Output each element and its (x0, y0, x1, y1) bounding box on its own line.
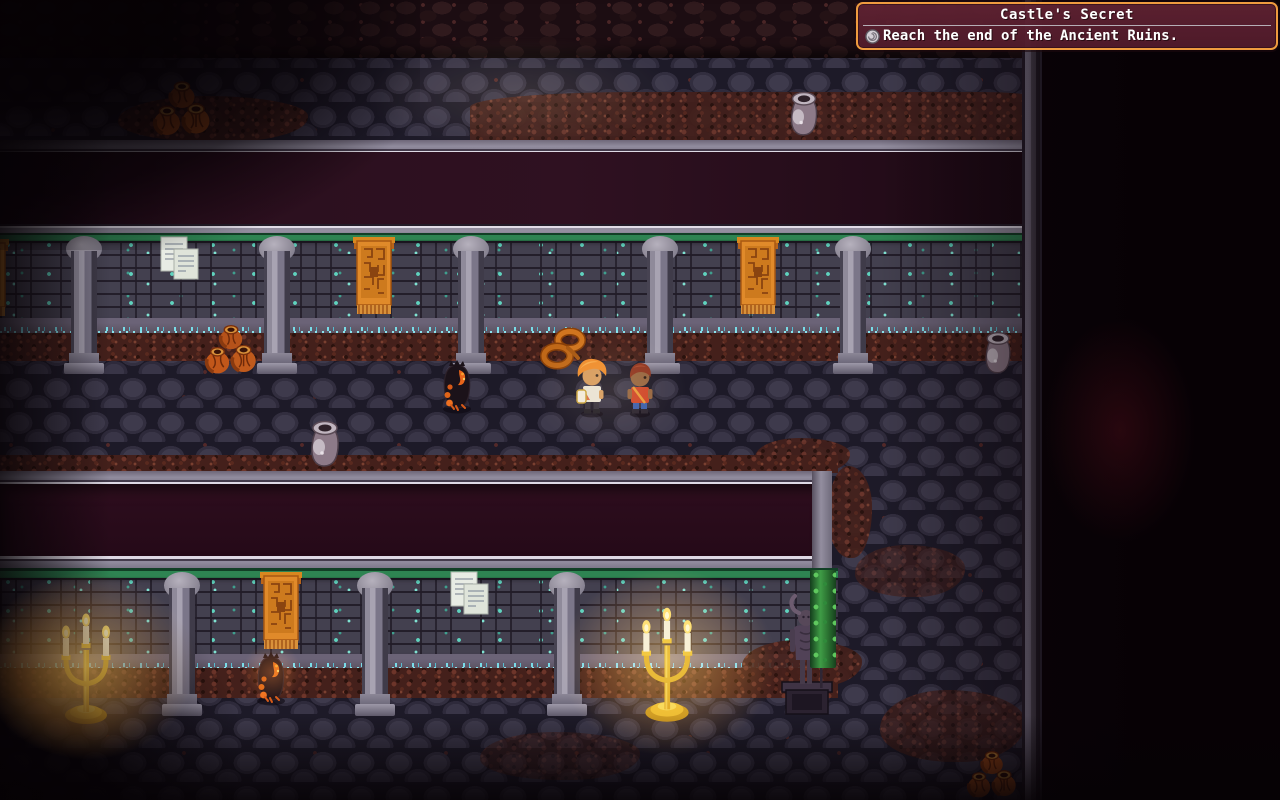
wall-banner-graphic (737, 237, 779, 317)
quest-objective: Reach the end of the Ancient Ruins. (883, 28, 1178, 44)
gravel-patch (828, 466, 872, 558)
gravel-patch (470, 92, 1035, 142)
hall-ledge-top (0, 471, 832, 485)
wall-banner-graphic (260, 572, 302, 652)
wall-notes-lower[interactable] (450, 571, 492, 619)
banner-lower-1 (260, 572, 302, 652)
gravel-patch (855, 545, 965, 597)
pillar-base (162, 704, 202, 716)
hero-graphic (572, 355, 612, 418)
gravel-strip-upper (0, 333, 1034, 361)
wall-banner-graphic (0, 239, 9, 319)
pillar-base (355, 704, 395, 716)
wall-notes-upper[interactable] (160, 236, 202, 284)
pillar-shaft (169, 588, 195, 705)
ivy-corner (810, 570, 836, 668)
shadow-imp-lower[interactable] (250, 648, 292, 706)
rune-base-upper (0, 318, 1034, 334)
pillar-upper-1 (62, 236, 106, 374)
pillar-lower-3 (545, 572, 589, 716)
pillar-base (547, 704, 587, 716)
game-viewport[interactable]: Castle's Secret Reach the end of the Anc… (0, 0, 1280, 800)
ceramic-pot-graphic (305, 416, 345, 470)
dark-hall (0, 484, 824, 558)
companion-character[interactable] (621, 359, 659, 418)
void-right (1042, 0, 1280, 800)
gravel-strip-lower (0, 668, 838, 698)
ceramic-pot-right[interactable] (980, 326, 1016, 378)
pillar-lower-2 (353, 572, 397, 716)
spiral-badge-icon (865, 29, 880, 44)
banner-upper-1 (353, 237, 395, 317)
shadowed-wall-band (0, 152, 1034, 226)
pillar-base (257, 363, 297, 374)
quest-separator (863, 25, 1271, 26)
clay-pots-graphic (150, 80, 214, 138)
clay-pots-mid-corridor[interactable] (204, 322, 258, 378)
shadow-imp-graphic (250, 648, 292, 706)
candelabra-right (634, 606, 700, 724)
shadow-imp-upper[interactable] (436, 356, 478, 414)
candelabra-graphic (634, 606, 700, 724)
map-right-edge (1022, 0, 1042, 800)
pillar-lower-1 (160, 572, 204, 716)
banner-upper-2 (737, 237, 779, 317)
hero-character[interactable] (572, 355, 612, 418)
gravel-patch (480, 732, 640, 780)
pillar-shaft (840, 251, 866, 363)
clay-pots-graphic (966, 750, 1018, 800)
paper-notes-graphic (450, 571, 492, 619)
ceramic-pot-mid[interactable] (305, 416, 345, 470)
pillar-upper-4 (638, 236, 682, 374)
candelabra-graphic (54, 612, 118, 726)
candelabra-left (54, 612, 118, 726)
pillar-shaft (264, 251, 290, 363)
pillar-base (64, 363, 104, 374)
ceramic-pot-graphic (785, 88, 823, 138)
paper-notes-graphic (160, 236, 202, 284)
pillar-shaft (71, 251, 97, 363)
banner-left-edge (0, 239, 9, 319)
shadow-imp-graphic (436, 356, 478, 414)
pillar-shaft (458, 251, 484, 363)
clay-pots-top-left[interactable] (150, 80, 214, 138)
companion-graphic (621, 359, 659, 418)
clay-pots-graphic (204, 322, 258, 378)
pillar-base (833, 363, 873, 374)
quest-title: Castle's Secret (858, 4, 1276, 23)
wall-banner-graphic (353, 237, 395, 317)
pillar-upper-3 (449, 236, 493, 374)
hall-end-cap (812, 471, 832, 569)
pillar-shaft (554, 588, 580, 705)
clay-pots-bottom-right[interactable] (966, 750, 1018, 800)
pillar-shaft (647, 251, 673, 363)
ceramic-pot-top[interactable] (785, 88, 823, 138)
ceramic-pot-graphic (980, 326, 1016, 378)
pillar-upper-5 (831, 236, 875, 374)
brick-wall-lower (0, 578, 838, 655)
pillar-upper-2 (255, 236, 299, 374)
quest-tracker: Castle's Secret Reach the end of the Anc… (856, 2, 1278, 50)
pillar-shaft (362, 588, 388, 705)
brick-wall-upper (0, 241, 1034, 319)
